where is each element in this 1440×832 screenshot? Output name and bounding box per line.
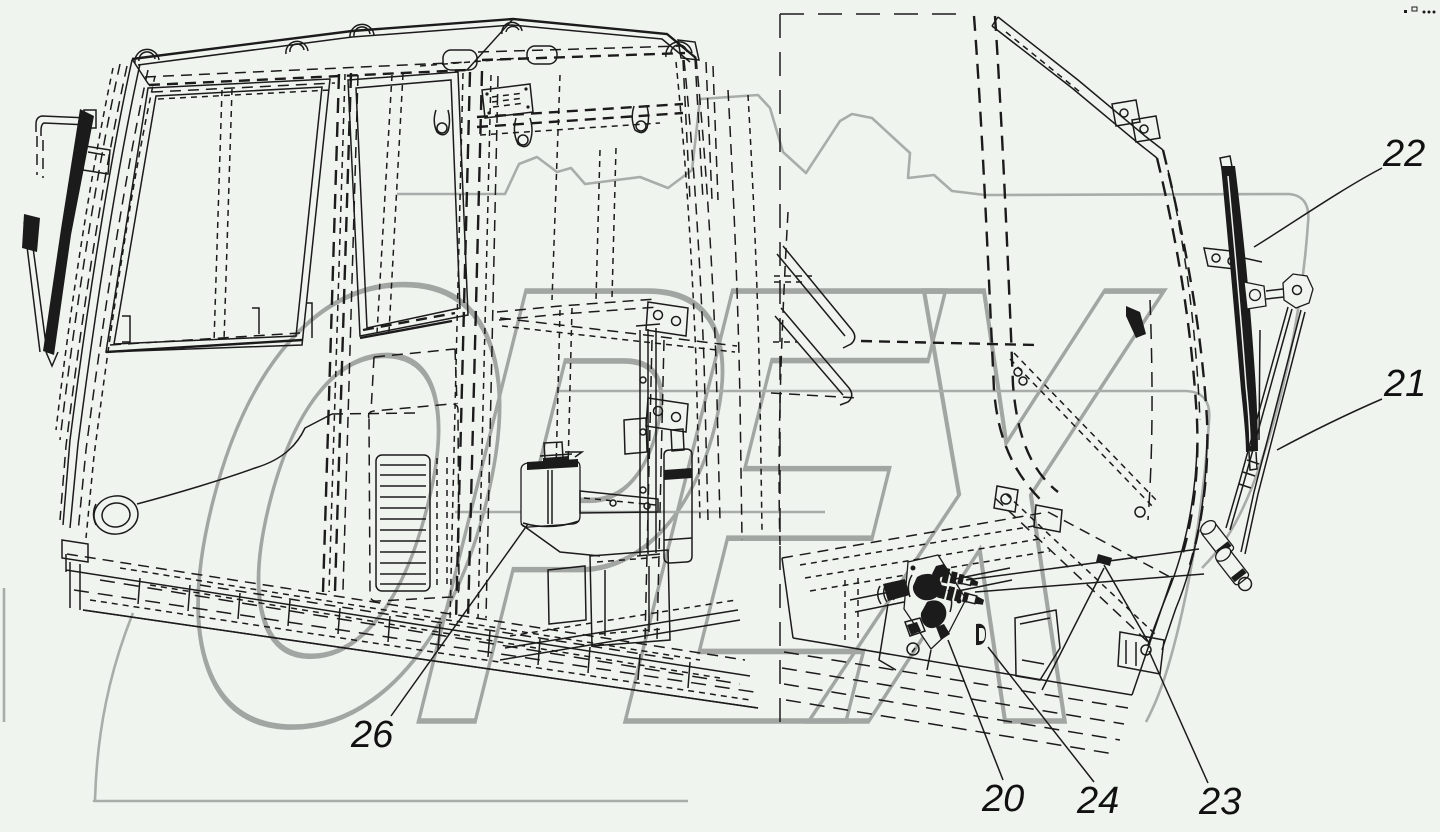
svg-text:23: 23 — [1198, 781, 1241, 823]
svg-text:20: 20 — [981, 778, 1024, 820]
svg-text:24: 24 — [1076, 780, 1119, 822]
svg-text:21: 21 — [1383, 363, 1426, 405]
svg-text:26: 26 — [350, 714, 394, 756]
svg-text:22: 22 — [1382, 133, 1425, 175]
